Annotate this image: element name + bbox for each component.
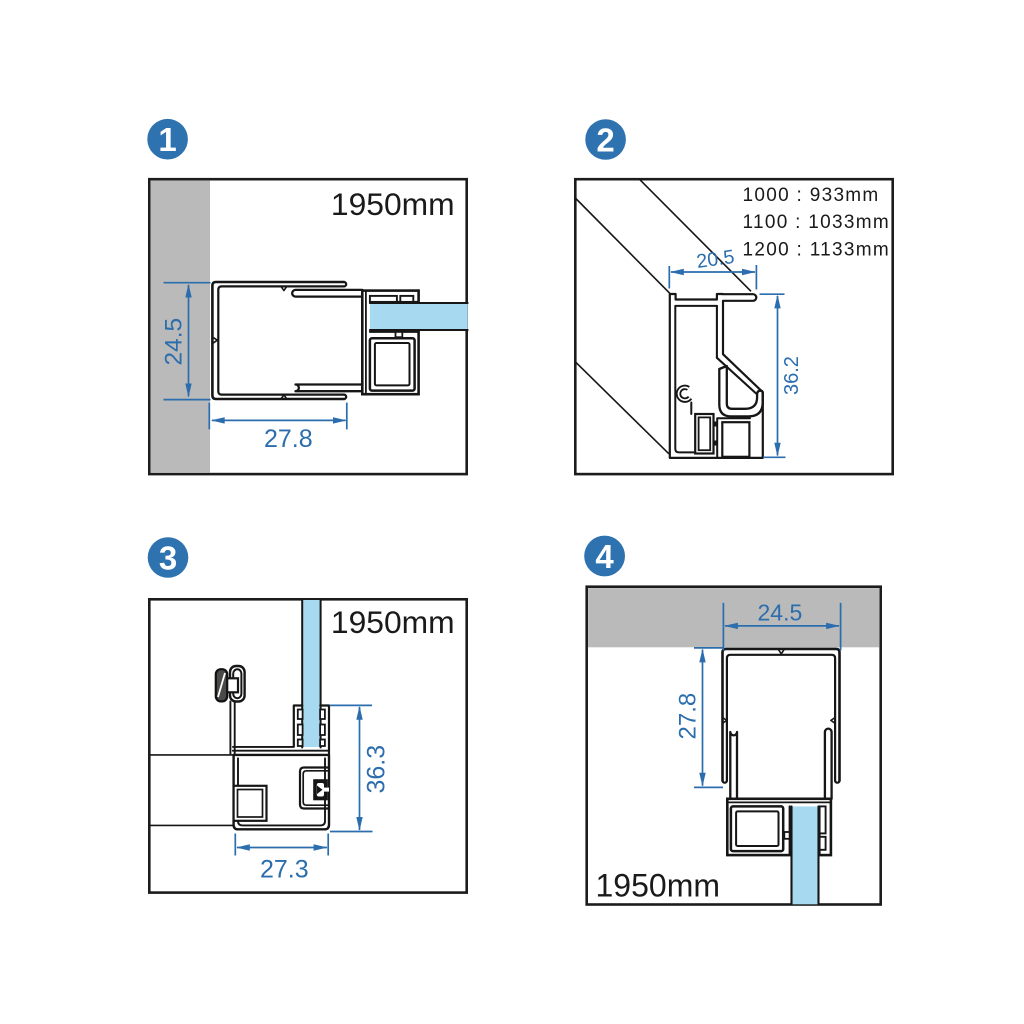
svg-text:4: 4 [595,538,614,575]
svg-text:36.3: 36.3 [363,745,391,794]
svg-text:1950mm: 1950mm [596,868,721,904]
svg-text:1100 : 1033mm: 1100 : 1033mm [743,212,891,233]
svg-text:1200 : 1133mm: 1200 : 1133mm [743,239,891,260]
svg-text:1950mm: 1950mm [331,604,455,640]
svg-text:27.8: 27.8 [264,425,313,453]
svg-text:36.2: 36.2 [781,356,803,395]
svg-text:24.5: 24.5 [161,318,188,366]
svg-text:3: 3 [159,539,177,576]
svg-text:27.8: 27.8 [675,693,702,740]
svg-text:24.5: 24.5 [758,599,803,625]
svg-text:1000 : 933mm: 1000 : 933mm [743,185,880,206]
svg-text:1950mm: 1950mm [331,186,455,222]
svg-text:1: 1 [158,121,176,158]
svg-text:27.3: 27.3 [260,856,309,884]
svg-text:2: 2 [596,121,614,158]
